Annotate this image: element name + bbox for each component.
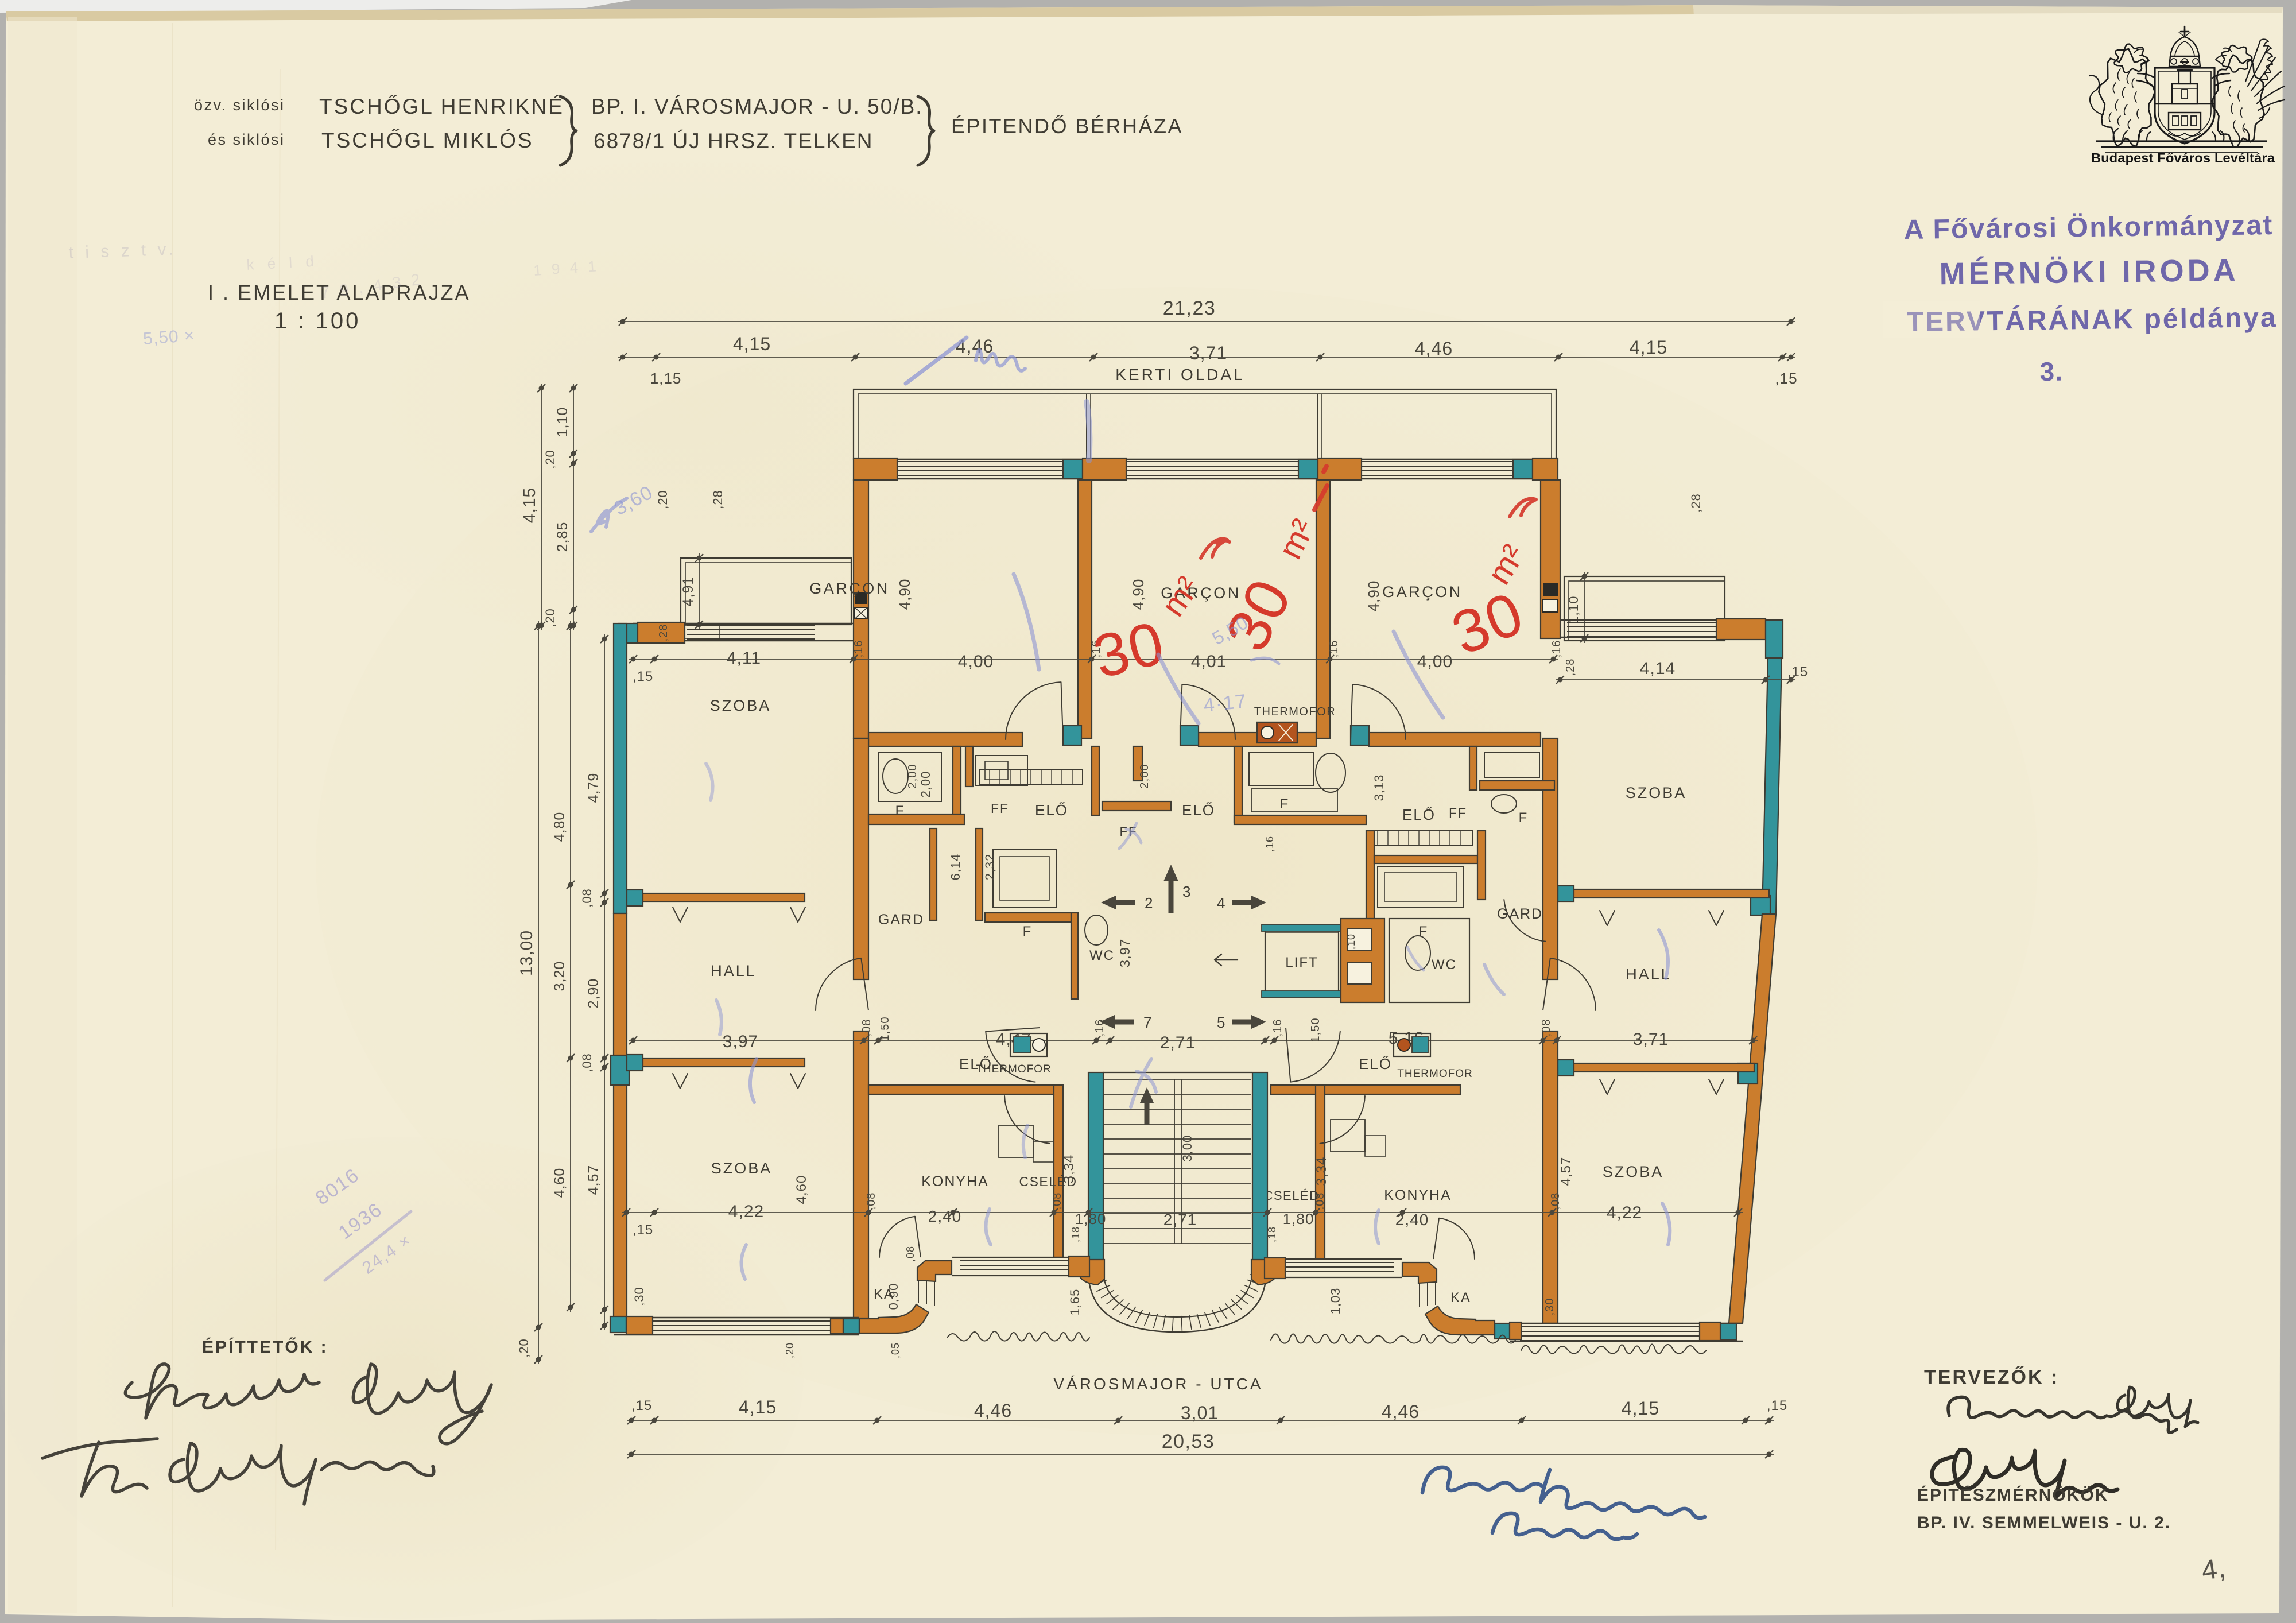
svg-text:0,90: 0,90 [886,1283,901,1310]
svg-text:2,00: 2,00 [906,764,919,789]
svg-text:13,00: 13,00 [517,930,536,976]
svg-text:4,15: 4,15 [1630,337,1667,358]
svg-text:3,71: 3,71 [1633,1030,1669,1049]
svg-text:BP. I. VÁROSMAJOR - U. 50/B.: BP. I. VÁROSMAJOR - U. 50/B. [591,95,923,118]
svg-text:F: F [895,803,905,819]
svg-text:HALL: HALL [711,962,757,979]
svg-text:3,71: 3,71 [1189,343,1227,363]
svg-text:WC: WC [1432,957,1457,973]
svg-text:4,15: 4,15 [739,1397,777,1417]
svg-text:,15: ,15 [633,1222,653,1238]
svg-text:F: F [1280,796,1290,812]
svg-text:3,97: 3,97 [1118,939,1133,968]
svg-text:,16: ,16 [1271,1019,1284,1037]
svg-text:TERVEZŐK :: TERVEZŐK : [1924,1366,2059,1388]
svg-text:4,60: 4,60 [794,1175,809,1204]
svg-text:,15: ,15 [1775,370,1797,387]
svg-text:ELŐ: ELŐ [1359,1055,1392,1072]
svg-text:5: 5 [1217,1014,1225,1031]
svg-text:3,00: 3,00 [1180,1135,1194,1162]
svg-text:4,46: 4,46 [1415,338,1453,359]
svg-text:4,14: 4,14 [1640,659,1676,678]
svg-text:4,22: 4,22 [1607,1203,1642,1222]
svg-text:CSELÉD: CSELÉD [1263,1188,1319,1203]
svg-text:ÉPÍTTETŐK :: ÉPÍTTETŐK : [202,1337,328,1357]
svg-text:,28: ,28 [657,624,670,642]
svg-text:,08: ,08 [580,888,594,908]
svg-text:,18: ,18 [1266,1226,1278,1242]
svg-text:,08: ,08 [905,1246,916,1262]
svg-text:7: 7 [1143,1014,1152,1031]
svg-text:,15: ,15 [1787,664,1808,680]
svg-text:4,46: 4,46 [1382,1401,1420,1422]
svg-text:GARD: GARD [1497,906,1543,922]
svg-text:KA: KA [1450,1290,1471,1306]
svg-text:1,65: 1,65 [1068,1289,1082,1316]
svg-text:4,90: 4,90 [896,579,913,610]
svg-text:WC: WC [1089,948,1115,963]
svg-text:,30: ,30 [1543,1298,1556,1316]
svg-text:ELŐ: ELŐ [1182,801,1215,819]
svg-text:,30: ,30 [632,1287,646,1306]
svg-text:,08: ,08 [1540,1019,1553,1037]
svg-text:,20: ,20 [543,608,557,627]
svg-text:4,22: 4,22 [728,1202,764,1221]
svg-text:,28: ,28 [711,490,725,509]
svg-text:3.: 3. [2039,357,2063,386]
svg-text:,10: ,10 [1345,933,1357,950]
svg-text:4,15: 4,15 [520,487,539,523]
svg-text:,05: ,05 [890,1342,901,1358]
svg-text:ELŐ: ELŐ [1035,801,1068,819]
svg-text:2,71: 2,71 [1163,1211,1197,1229]
svg-text:özv. siklósi: özv. siklósi [194,96,285,114]
svg-text:4,57: 4,57 [1558,1157,1574,1186]
svg-text:4,00: 4,00 [958,652,994,671]
svg-text:ELŐ: ELŐ [1402,806,1436,823]
svg-text:,16: ,16 [852,640,865,658]
svg-text:4,15: 4,15 [1622,1398,1659,1419]
svg-text:GARÇON: GARÇON [809,580,890,597]
svg-text:,08: ,08 [1549,1192,1562,1210]
svg-text:,15: ,15 [1767,1398,1787,1413]
svg-text:1,50: 1,50 [879,1017,891,1041]
svg-text:THERMOFOR: THERMOFOR [976,1063,1051,1075]
svg-text:TSCHŐGL MIKLÓS: TSCHŐGL MIKLÓS [321,129,534,152]
svg-text:3: 3 [1182,883,1191,900]
svg-text:4,90: 4,90 [1130,579,1147,610]
svg-text:t i s z t v.: t i s z t v. [68,239,177,262]
svg-text:3,01: 3,01 [1181,1403,1219,1423]
svg-text:3,13: 3,13 [1372,774,1386,801]
svg-text:,16: ,16 [1093,1019,1106,1037]
svg-text:VÁROSMAJOR - UTCA: VÁROSMAJOR - UTCA [1053,1375,1263,1393]
svg-text:2,90: 2,90 [585,978,602,1009]
svg-text:4,90: 4,90 [1365,580,1382,612]
svg-text:5,50 ×: 5,50 × [142,326,195,348]
svg-text:2,71: 2,71 [1160,1033,1196,1052]
svg-text:F: F [1023,924,1033,939]
svg-text:1,50: 1,50 [1309,1018,1322,1043]
svg-text:,20: ,20 [543,450,557,469]
svg-text:2,40: 2,40 [928,1207,962,1225]
svg-text:4,46: 4,46 [956,336,994,357]
svg-text:4,00: 4,00 [1417,652,1453,671]
svg-text:A Fővárosi Önkormányzat: A Fővárosi Önkormányzat [1904,210,2274,245]
svg-text:1,15: 1,15 [650,370,682,387]
svg-text:,28: ,28 [1689,493,1703,513]
svg-text:2,40: 2,40 [1395,1211,1429,1229]
svg-text:4,79: 4,79 [585,773,602,803]
svg-text:1,80: 1,80 [1283,1210,1314,1227]
svg-text:,18: ,18 [1070,1226,1081,1242]
svg-text:4,60: 4,60 [552,1168,568,1198]
svg-text:4,91: 4,91 [680,576,696,607]
svg-text:1 : 100: 1 : 100 [274,308,360,334]
svg-text:SZOBA: SZOBA [711,1160,773,1177]
svg-text:3,20: 3,20 [552,961,568,991]
svg-text:6878/1 ÚJ HRSZ. TELKEN: 6878/1 ÚJ HRSZ. TELKEN [594,129,874,153]
svg-text:,20: ,20 [784,1342,796,1358]
svg-text:6,14: 6,14 [948,854,963,881]
svg-text:2: 2 [1145,894,1153,912]
svg-text:,08: ,08 [1051,1192,1064,1210]
svg-text:THERMOFOR: THERMOFOR [1254,706,1336,718]
svg-text:,15: ,15 [633,669,653,684]
svg-text:ÉPITENDŐ BÉRHÁZA: ÉPITENDŐ BÉRHÁZA [951,114,1183,138]
svg-text:20,53: 20,53 [1162,1431,1215,1452]
svg-text:,28: ,28 [1564,659,1577,676]
svg-text:4,: 4, [2200,1553,2228,1586]
svg-text:4·17: 4·17 [1203,690,1248,716]
svg-text:,20: ,20 [656,490,670,509]
svg-text:KERTI OLDAL: KERTI OLDAL [1115,366,1245,384]
svg-text:SZOBA: SZOBA [710,697,771,714]
svg-text:MÉRNÖKI IRODA: MÉRNÖKI IRODA [1939,253,2239,291]
svg-text:3,97: 3,97 [723,1032,758,1051]
svg-text:,15: ,15 [631,1398,652,1413]
svg-text:,16: ,16 [1328,640,1340,658]
svg-text:ÉPITÉSZMÉRNÖKÖK: ÉPITÉSZMÉRNÖKÖK [1917,1485,2108,1505]
svg-text:,16: ,16 [1264,836,1275,852]
svg-text:2,00: 2,00 [918,771,933,798]
svg-text:F: F [1419,924,1429,939]
svg-text:LIFT: LIFT [1285,955,1318,970]
svg-text:TSCHŐGL HENRIKNÉ: TSCHŐGL HENRIKNÉ [319,95,564,118]
svg-text:2,00: 2,00 [1138,764,1151,789]
svg-text:GARÇON: GARÇON [1382,583,1463,601]
svg-text:4,46: 4,46 [974,1400,1012,1421]
svg-text:FF: FF [991,801,1009,816]
svg-text:4,11: 4,11 [727,649,761,668]
svg-text:,20: ,20 [517,1338,531,1358]
svg-text:1,03: 1,03 [1328,1288,1343,1315]
svg-text:THERMOFOR: THERMOFOR [1397,1068,1472,1080]
svg-text:és siklósi: és siklósi [208,131,285,148]
svg-text:SZOBA: SZOBA [1626,784,1687,801]
svg-text:F: F [1519,810,1529,826]
svg-text:GARD: GARD [878,912,924,928]
svg-text:BP. IV. SEMMELWEIS - U. 2.: BP. IV. SEMMELWEIS - U. 2. [1917,1513,2171,1532]
svg-text:1,80: 1,80 [1075,1210,1107,1227]
svg-text:4,80: 4,80 [552,812,568,842]
svg-text:21,23: 21,23 [1163,297,1216,319]
svg-text:4,01: 4,01 [1191,652,1227,671]
svg-text:3,34: 3,34 [1061,1155,1077,1184]
svg-text:SZOBA: SZOBA [1603,1163,1664,1180]
svg-text:KONYHA: KONYHA [1384,1187,1452,1203]
svg-text:,16: ,16 [1550,640,1563,658]
svg-text:4: 4 [1217,894,1225,912]
svg-text:4,15: 4,15 [733,334,771,354]
svg-text:1,10: 1,10 [554,407,571,437]
svg-text:Budapest Főváros Levéltára: Budapest Főváros Levéltára [2091,150,2275,165]
svg-text:,08: ,08 [860,1019,873,1037]
svg-text:,08: ,08 [1314,1192,1327,1210]
svg-text:3,34: 3,34 [1314,1157,1329,1186]
svg-text:2,85: 2,85 [554,522,571,552]
svg-text:HALL: HALL [1626,966,1671,983]
svg-text:4,57: 4,57 [585,1165,602,1195]
svg-text:KONYHA: KONYHA [921,1173,989,1190]
svg-text:2,32: 2,32 [983,854,997,881]
svg-text:,08: ,08 [580,1053,594,1072]
svg-text:,08: ,08 [865,1192,878,1210]
svg-text:FF: FF [1449,805,1467,820]
